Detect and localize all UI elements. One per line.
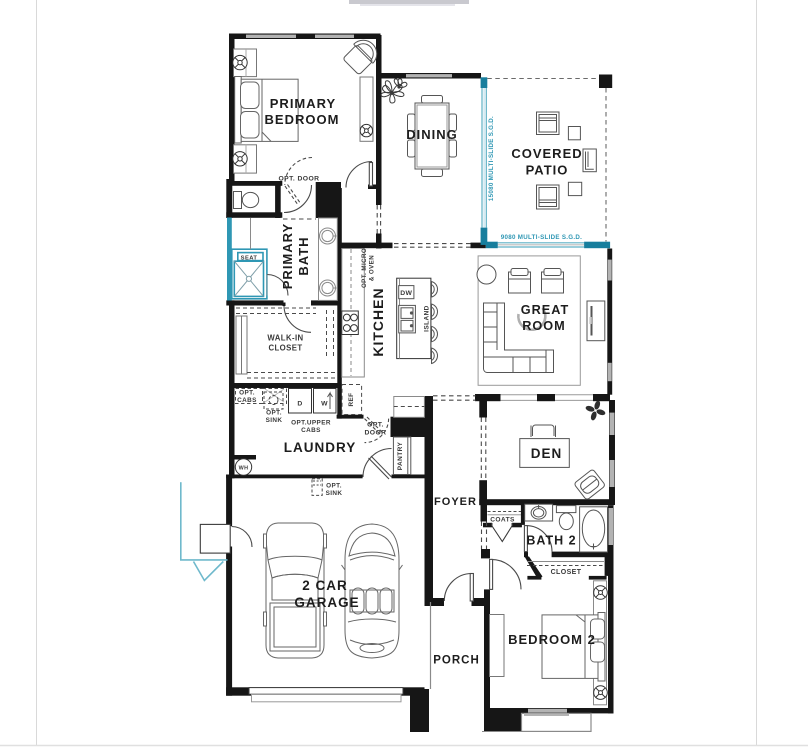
svg-text:CLOSET: CLOSET <box>268 344 302 353</box>
svg-text:OPT. DOOR: OPT. DOOR <box>279 176 320 183</box>
svg-text:BATH 2: BATH 2 <box>526 534 576 548</box>
svg-text:COVERED: COVERED <box>511 146 582 161</box>
svg-text:SINK: SINK <box>326 490 343 497</box>
svg-text:LAUNDRY: LAUNDRY <box>284 440 357 455</box>
svg-text:ROOM: ROOM <box>522 319 565 333</box>
svg-text:& OVEN: & OVEN <box>369 255 376 281</box>
svg-text:OPT.: OPT. <box>266 410 282 417</box>
svg-text:OPT.: OPT. <box>367 422 384 429</box>
svg-text:15080 MULTI-SLIDE S.G.D.: 15080 MULTI-SLIDE S.G.D. <box>488 116 495 201</box>
svg-text:D: D <box>297 401 302 408</box>
svg-text:BATH: BATH <box>296 236 311 275</box>
svg-text:PRIMARY: PRIMARY <box>270 96 336 111</box>
svg-text:OPT.UPPER: OPT.UPPER <box>291 420 331 427</box>
svg-text:COATS: COATS <box>490 517 515 524</box>
svg-text:SINK: SINK <box>266 417 283 424</box>
svg-text:KITCHEN: KITCHEN <box>370 287 386 356</box>
svg-text:OPT.: OPT. <box>326 483 342 490</box>
svg-text:GARAGE: GARAGE <box>294 595 359 610</box>
svg-text:SEAT: SEAT <box>241 256 258 262</box>
svg-text:DINING: DINING <box>406 127 458 142</box>
svg-text:PANTRY: PANTRY <box>397 442 404 471</box>
svg-text:BEDROOM 2: BEDROOM 2 <box>508 632 596 647</box>
svg-text:PORCH: PORCH <box>433 655 480 667</box>
svg-text:9080 MULTI-SLIDE S.G.D.: 9080 MULTI-SLIDE S.G.D. <box>501 234 582 241</box>
svg-text:FOYER: FOYER <box>434 496 477 508</box>
svg-text:OPT. MICRO: OPT. MICRO <box>361 248 368 288</box>
svg-text:CABS: CABS <box>301 427 321 434</box>
svg-text:DOOR: DOOR <box>365 430 387 437</box>
svg-text:ISLAND: ISLAND <box>424 305 431 332</box>
svg-text:CABS: CABS <box>237 397 257 404</box>
svg-text:DW: DW <box>400 290 412 297</box>
svg-text:PRIMARY: PRIMARY <box>280 223 295 289</box>
svg-text:DEN: DEN <box>531 446 563 461</box>
svg-text:REF: REF <box>348 393 355 407</box>
svg-text:WALK-IN: WALK-IN <box>267 334 303 343</box>
svg-text:WH: WH <box>239 465 249 471</box>
svg-text:PATIO: PATIO <box>526 163 569 178</box>
svg-text:2 CAR: 2 CAR <box>302 578 348 593</box>
svg-text:CLOSET: CLOSET <box>551 569 582 576</box>
svg-text:W: W <box>321 401 328 408</box>
svg-text:BEDROOM: BEDROOM <box>265 112 340 127</box>
svg-text:GREAT: GREAT <box>521 303 569 317</box>
svg-text:OPT.: OPT. <box>239 390 255 397</box>
